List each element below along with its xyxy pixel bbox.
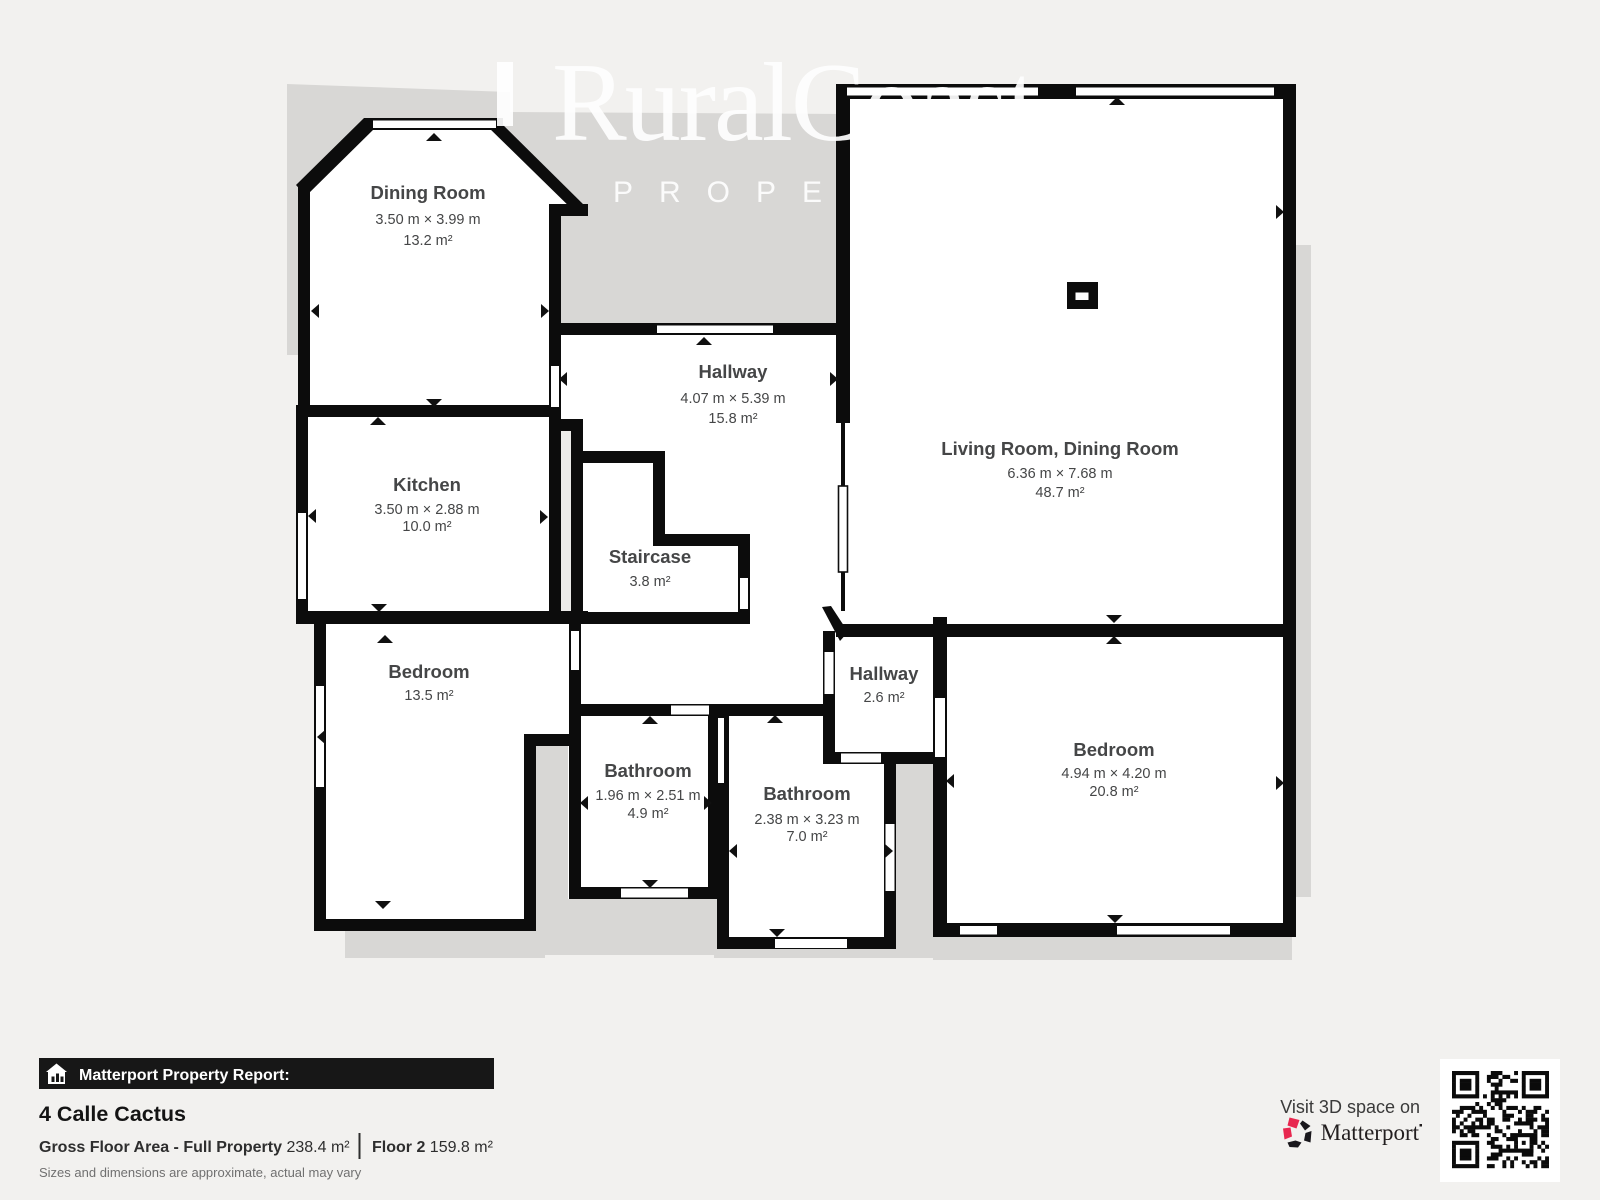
svg-text:13.5 m²: 13.5 m² bbox=[404, 688, 453, 704]
svg-text:Staircase: Staircase bbox=[609, 546, 691, 567]
svg-text:Matterport Property Report:: Matterport Property Report: bbox=[79, 1067, 290, 1084]
svg-text:Gross Floor Area - Full Proper: Gross Floor Area - Full Property 238.4 m… bbox=[39, 1139, 350, 1156]
svg-text:4.9 m²: 4.9 m² bbox=[627, 806, 668, 822]
svg-text:PROPERTIES: PROPERTIES bbox=[613, 176, 1066, 209]
svg-text:RuralCoast: RuralCoast bbox=[552, 41, 1038, 165]
svg-text:2.6 m²: 2.6 m² bbox=[863, 690, 904, 706]
svg-text:4 Calle Cactus: 4 Calle Cactus bbox=[39, 1102, 186, 1126]
svg-text:3.50 m × 3.99 m: 3.50 m × 3.99 m bbox=[375, 212, 480, 228]
svg-text:48.7 m²: 48.7 m² bbox=[1035, 485, 1084, 501]
svg-text:2.38 m × 3.23 m: 2.38 m × 3.23 m bbox=[754, 812, 859, 828]
svg-text:1.96 m × 2.51 m: 1.96 m × 2.51 m bbox=[595, 788, 700, 804]
svg-text:4.07 m × 5.39 m: 4.07 m × 5.39 m bbox=[680, 391, 785, 407]
svg-text:Bathroom: Bathroom bbox=[604, 760, 691, 781]
svg-text:Hallway: Hallway bbox=[699, 361, 769, 382]
svg-text:Bedroom: Bedroom bbox=[1073, 739, 1154, 760]
svg-text:Dining Room: Dining Room bbox=[370, 182, 485, 203]
svg-text:Matterport: Matterport bbox=[1321, 1120, 1420, 1145]
svg-text:Bedroom: Bedroom bbox=[388, 661, 469, 682]
svg-text:Visit 3D space on: Visit 3D space on bbox=[1280, 1097, 1420, 1117]
svg-text:3.8 m²: 3.8 m² bbox=[629, 574, 670, 590]
svg-text:6.36 m × 7.68 m: 6.36 m × 7.68 m bbox=[1007, 466, 1112, 482]
svg-text:Hallway: Hallway bbox=[850, 663, 920, 684]
svg-text:20.8 m²: 20.8 m² bbox=[1089, 784, 1138, 800]
svg-text:Living Room, Dining Room: Living Room, Dining Room bbox=[941, 438, 1178, 459]
svg-text:15.8 m²: 15.8 m² bbox=[708, 411, 757, 427]
svg-text:Floor 2 159.8 m²: Floor 2 159.8 m² bbox=[372, 1139, 494, 1156]
svg-text:7.0 m²: 7.0 m² bbox=[786, 829, 827, 845]
svg-text:10.0 m²: 10.0 m² bbox=[402, 519, 451, 535]
svg-text:4.94 m × 4.20 m: 4.94 m × 4.20 m bbox=[1061, 766, 1166, 782]
svg-text:Sizes and dimensions are appro: Sizes and dimensions are approximate, ac… bbox=[39, 1165, 362, 1180]
svg-text:Kitchen: Kitchen bbox=[393, 474, 461, 495]
svg-text:Bathroom: Bathroom bbox=[763, 783, 850, 804]
svg-text:3.50 m × 2.88 m: 3.50 m × 2.88 m bbox=[374, 502, 479, 518]
svg-text:13.2 m²: 13.2 m² bbox=[403, 233, 452, 249]
